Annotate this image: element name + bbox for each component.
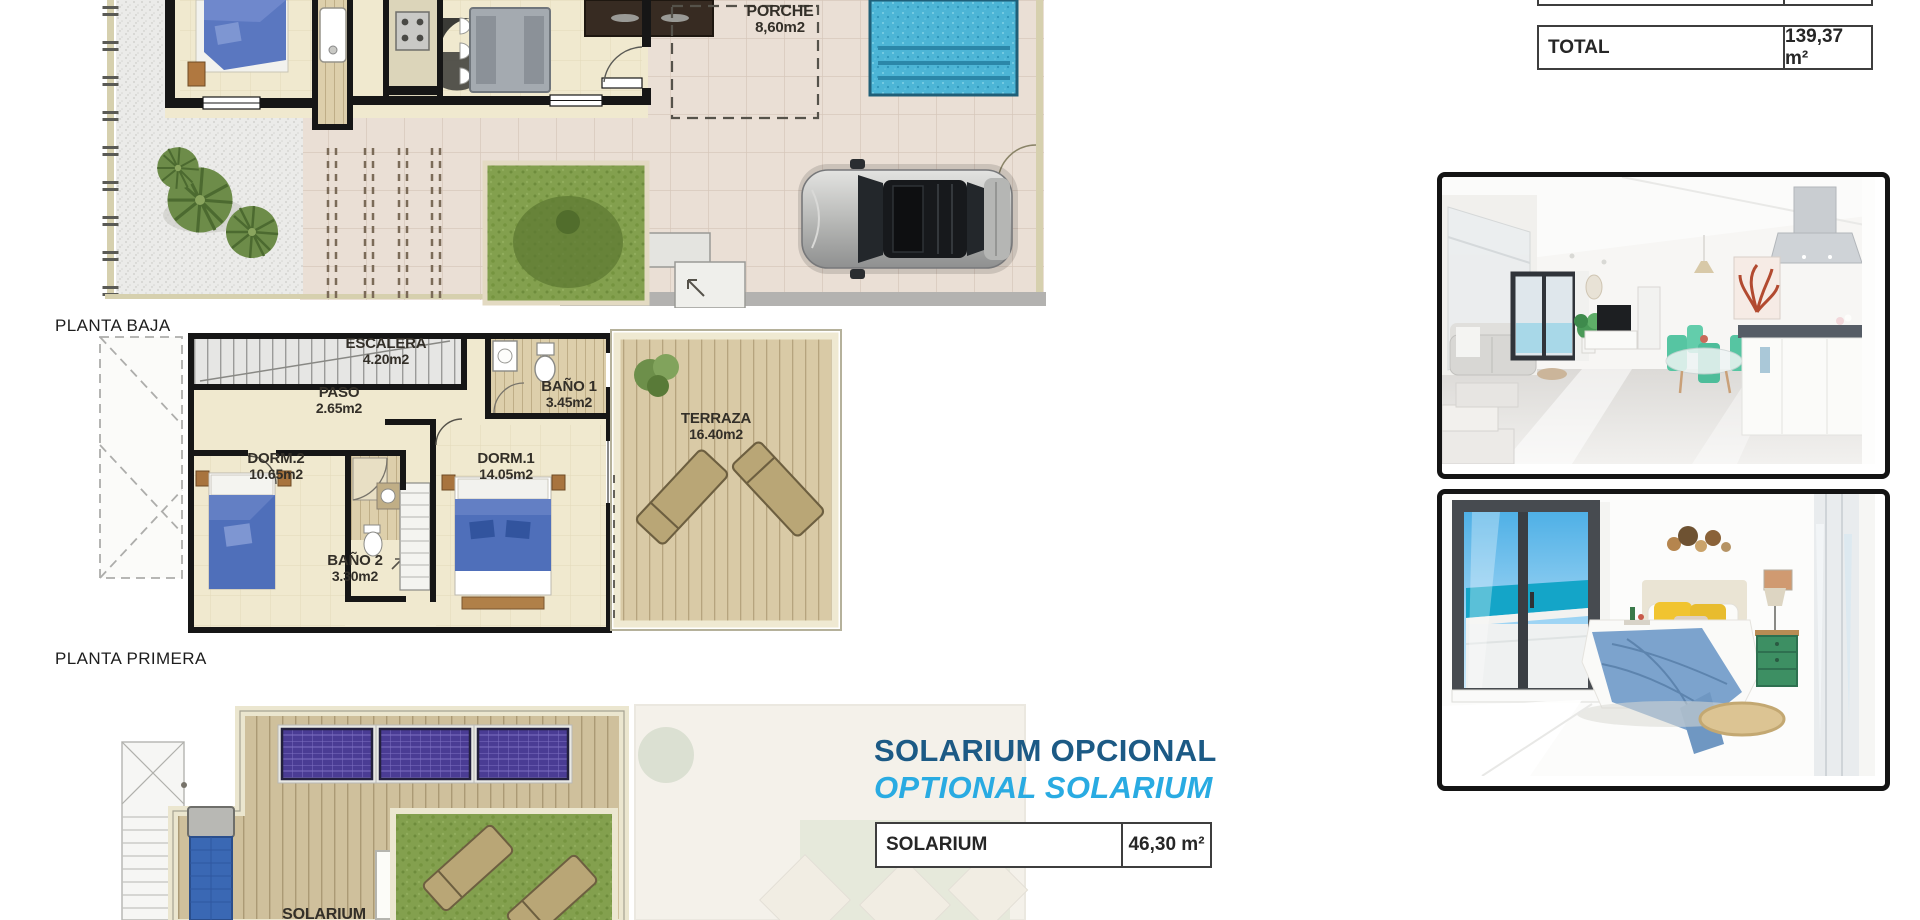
mirror-wardrobe [1814,494,1875,776]
dining-table [460,8,550,92]
areas-table-partial-row [1537,0,1873,6]
first-floor-caption: PLANTA PRIMERA [55,649,207,669]
solarium-turf [393,811,615,920]
terrace [611,330,841,630]
solarium-table-value: 46,30 m² [1123,824,1210,866]
solar-panel [376,725,474,783]
bedroom1-bed [442,475,565,609]
solar-panel [474,725,572,783]
garden-patch [485,163,647,303]
solar-panel [278,725,376,783]
solarium-title-es: SOLARIUM OPCIONAL [874,733,1217,769]
palm-tree [226,206,278,258]
room-label-bano2: BAÑO 2 3.30m2 [295,553,415,584]
room-label-paso: PASO 2.65m2 [279,385,399,416]
jute-rug [1700,703,1784,735]
room-label-dorm1: DORM.1 14.05m2 [446,451,566,482]
car [798,159,1018,279]
palm-tree [157,147,199,189]
total-value: 139,37 m² [1785,27,1871,68]
botanical-art [1734,257,1780,319]
side-table [1537,368,1567,380]
total-label: TOTAL [1539,27,1785,68]
swimming-pool [870,0,1017,95]
room-label-porche: PORCHE 8,60m2 [730,3,830,36]
bedroom-window [1452,500,1600,702]
wall-mirror [1586,275,1602,299]
kitchen-island [1738,315,1875,436]
bedroom-photo [1437,489,1890,791]
room-label-bano1: BAÑO 1 3.45m2 [509,379,629,410]
living-kitchen-photo [1437,172,1890,479]
first-floor-plan [90,325,850,640]
blue-lounger [188,807,234,920]
rear-window [1513,274,1575,358]
solarium-table-label: SOLARIUM [877,824,1123,866]
room-label-solarium: SOLARIUM [264,906,384,920]
room-label-escalera: ESCALERA 4.20m2 [316,336,456,367]
ground-floor-plan [100,0,1048,308]
kitchen-stove [396,12,429,50]
total-table: TOTAL 139,37 m² [1537,25,1873,70]
ground-floor-caption: PLANTA BAJA [55,316,171,336]
solarium-title-en: OPTIONAL SOLARIUM [874,770,1213,806]
room-label-terraza: TERRAZA 16.40m2 [656,411,776,442]
room-label-dorm2: DORM.2 10.65m2 [216,451,336,482]
solarium-table: SOLARIUM 46,30 m² [875,822,1212,868]
entrance-door [602,78,642,88]
brochure-page: PLANTA BAJA PLANTA PRIMERA PORCHE 8,60m2… [0,0,1920,920]
ghost-outline [100,337,182,578]
hall-door [1638,287,1660,349]
